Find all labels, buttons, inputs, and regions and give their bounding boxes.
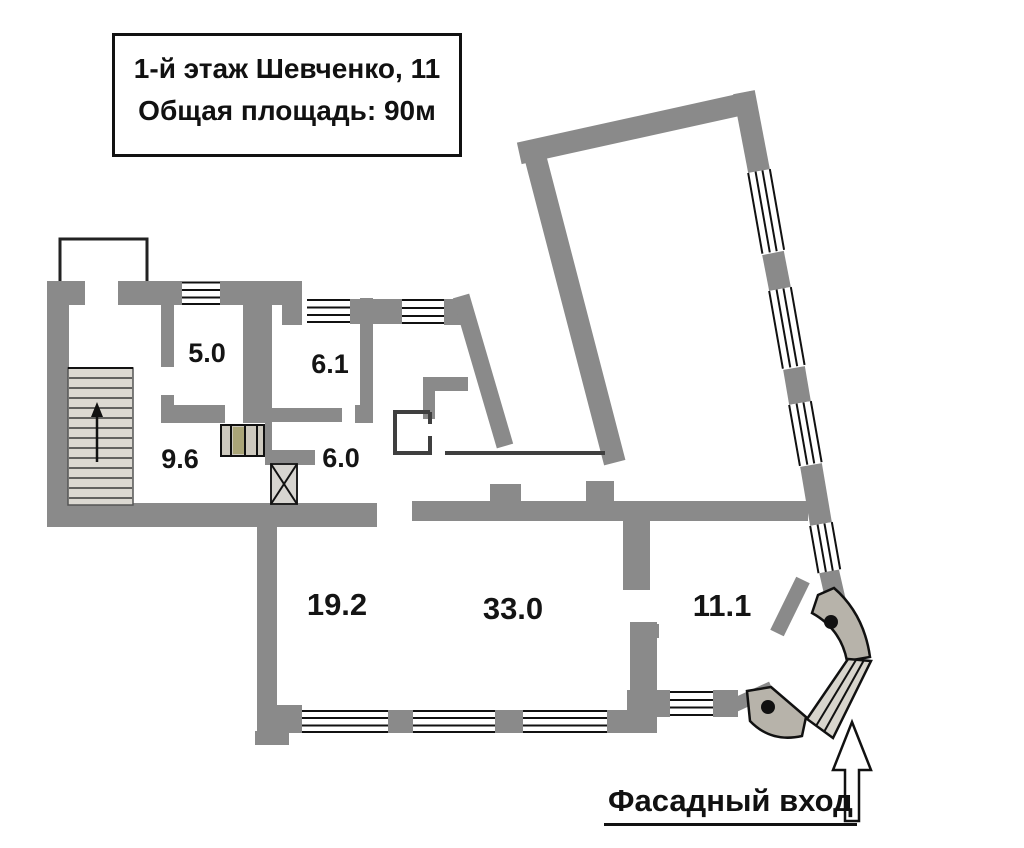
window <box>748 169 784 254</box>
wall-segment <box>255 731 289 745</box>
wall-segment <box>282 281 302 325</box>
window <box>810 522 840 573</box>
wall-segment <box>534 152 612 452</box>
wall-segment <box>47 503 377 527</box>
wall-segment <box>47 281 69 527</box>
title-line-1: 1-й этаж Шевченко, 11 <box>115 48 459 90</box>
column-dot <box>824 615 838 629</box>
wall-segment <box>350 299 402 324</box>
title-box: 1-й этаж Шевченко, 11 Общая площадь: 90м <box>112 33 462 157</box>
wall-segment <box>161 405 225 423</box>
window <box>402 299 444 324</box>
window <box>182 281 220 305</box>
wall-segment <box>627 690 657 733</box>
window <box>413 710 495 733</box>
wall-segment <box>118 281 182 305</box>
wall-segment <box>777 580 803 633</box>
wall-segment <box>265 408 342 422</box>
wall-segment <box>530 104 743 151</box>
entrance-bay <box>747 588 871 738</box>
room-area-label: 33.0 <box>483 591 543 626</box>
wall-segment <box>277 705 302 733</box>
room-area-label: 9.6 <box>161 444 199 474</box>
wall-segment <box>265 450 315 465</box>
wall-segment <box>773 253 780 289</box>
wall-segment <box>586 481 614 502</box>
room-area-label: 19.2 <box>307 587 367 622</box>
wall-segment <box>412 501 808 521</box>
wall-segment <box>161 305 174 367</box>
wall-segment <box>243 305 272 423</box>
window <box>523 710 607 733</box>
small-steps <box>221 425 264 456</box>
wall-segment <box>257 527 277 737</box>
wall-segment <box>360 298 373 415</box>
entrance-landing-lower <box>747 687 806 738</box>
shaft-box <box>271 464 297 504</box>
wall-segment <box>623 513 650 590</box>
title-line-2: Общая площадь: 90м <box>115 90 459 132</box>
room-area-label: 6.0 <box>322 443 360 473</box>
wall-segment <box>388 710 413 733</box>
window <box>307 299 350 323</box>
wall-segment <box>794 368 800 403</box>
room-area-label: 5.0 <box>188 338 226 368</box>
wall-segment <box>265 420 272 452</box>
room-area-label: 11.1 <box>693 588 752 623</box>
room-area-label: 6.1 <box>311 349 349 379</box>
wall-segment <box>461 296 505 446</box>
column-dot <box>761 700 775 714</box>
window <box>302 710 388 733</box>
window <box>670 691 713 716</box>
service-elements <box>221 425 297 504</box>
entrance-landing-upper <box>812 588 870 661</box>
staircase <box>68 368 133 505</box>
wall-segment <box>811 465 821 524</box>
wall-segment <box>495 710 523 733</box>
wall-segment <box>746 103 759 171</box>
window <box>769 287 804 369</box>
floor-plan-page: 5.0 6.1 9.6 6.0 19.2 33.0 11.1 1-й этаж … <box>0 0 1024 848</box>
window <box>789 401 821 466</box>
wall-segment <box>645 624 659 638</box>
porch-outline <box>60 239 147 286</box>
wall-segment <box>490 484 521 502</box>
entrance-label: Фасадный вход <box>604 783 857 826</box>
